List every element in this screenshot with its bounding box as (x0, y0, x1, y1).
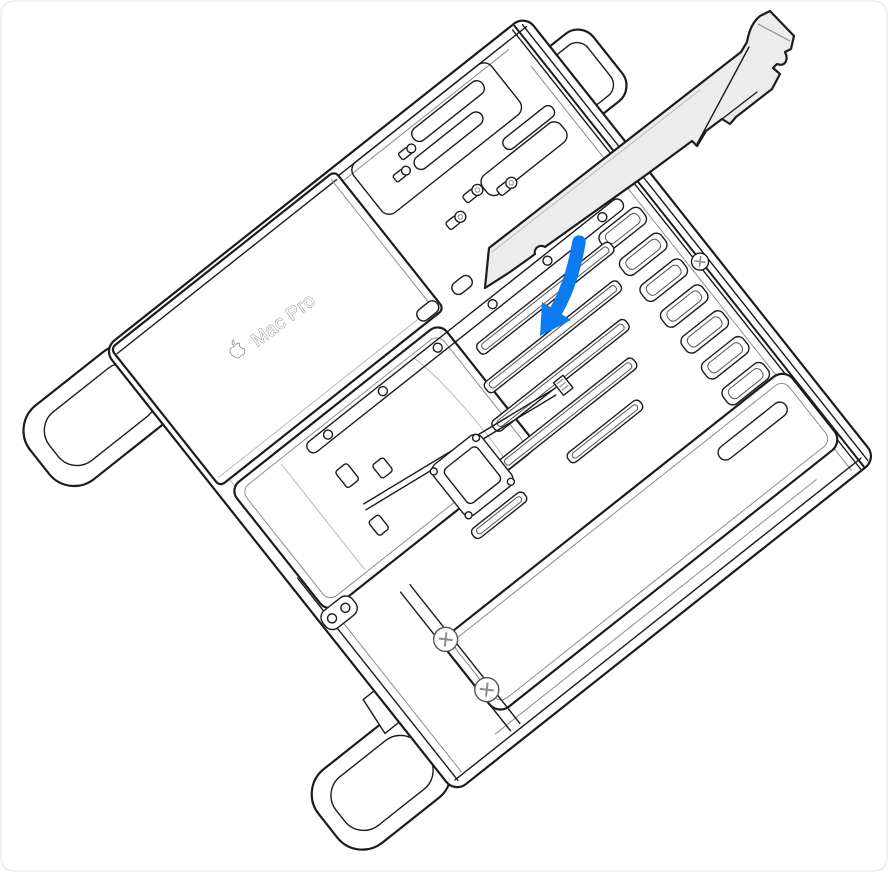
illustration-canvas: Mac Pro (0, 0, 888, 872)
mac-pro-pcie-install-illustration: Mac Pro (0, 0, 888, 872)
